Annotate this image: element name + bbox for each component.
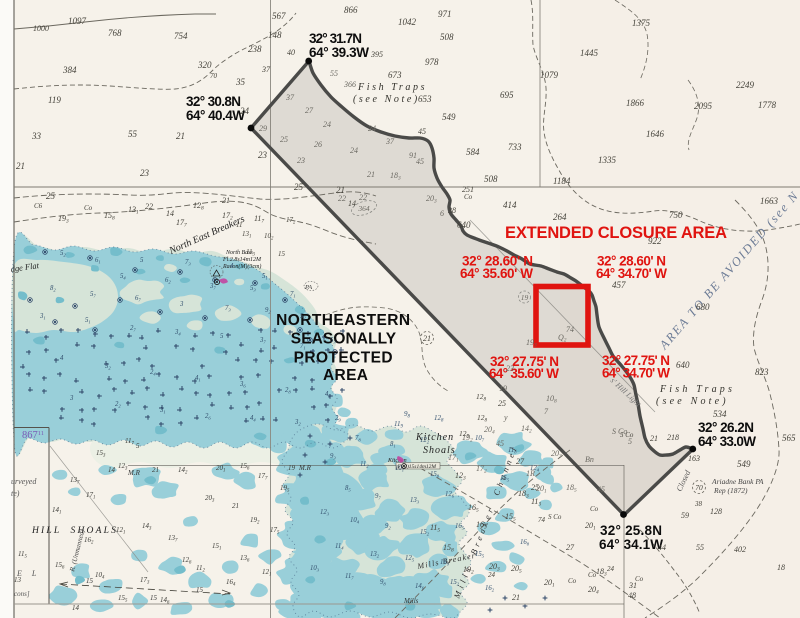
svg-text:y: y xyxy=(503,413,508,422)
svg-text:70: 70 xyxy=(210,72,218,80)
svg-text:32° 26.2N64° 33.0W: 32° 26.2N64° 33.0W xyxy=(698,420,756,449)
svg-text:15: 15 xyxy=(150,594,158,602)
svg-text:70: 70 xyxy=(695,483,703,492)
svg-text:19: 19 xyxy=(521,293,529,302)
svg-text:148: 148 xyxy=(268,30,282,40)
svg-text:Fish Traps(see Note): Fish Traps(see Note) xyxy=(656,384,735,407)
svg-text:1042: 1042 xyxy=(398,17,417,27)
svg-text:1866: 1866 xyxy=(626,98,645,108)
svg-text:32° 27.75' N64° 34.70' W: 32° 27.75' N64° 34.70' W xyxy=(602,353,670,381)
svg-text:22: 22 xyxy=(338,194,346,203)
svg-text:640: 640 xyxy=(457,220,471,230)
svg-text:21: 21 xyxy=(152,466,159,474)
svg-text:45: 45 xyxy=(418,127,426,136)
svg-text:238: 238 xyxy=(248,44,262,54)
svg-text:37: 37 xyxy=(261,65,271,74)
svg-text:15: 15 xyxy=(196,586,204,594)
svg-text:S Co: S Co xyxy=(548,513,562,521)
svg-text:40: 40 xyxy=(287,48,295,57)
svg-text:1663: 1663 xyxy=(760,196,779,206)
svg-text:55: 55 xyxy=(696,543,704,552)
svg-text:754: 754 xyxy=(174,31,188,41)
svg-text:11: 11 xyxy=(236,221,242,229)
svg-text:Co: Co xyxy=(84,204,93,212)
svg-text:1079: 1079 xyxy=(540,70,559,80)
svg-text:3: 3 xyxy=(69,395,74,402)
svg-text:402: 402 xyxy=(734,545,746,554)
svg-text:27: 27 xyxy=(305,106,314,115)
svg-text:M.R: M.R xyxy=(298,464,312,472)
svg-text:37: 37 xyxy=(385,137,395,146)
svg-text:21: 21 xyxy=(232,502,239,510)
svg-text:48: 48 xyxy=(628,591,636,600)
svg-text:4: 4 xyxy=(60,355,64,362)
svg-text:5: 5 xyxy=(140,257,144,264)
svg-text:2249: 2249 xyxy=(736,80,755,90)
svg-text:24: 24 xyxy=(240,106,250,116)
svg-text:44: 44 xyxy=(658,543,666,552)
svg-text:23: 23 xyxy=(140,168,150,178)
svg-text:38: 38 xyxy=(447,206,456,215)
svg-text:2095: 2095 xyxy=(694,101,713,111)
svg-text:27: 27 xyxy=(516,457,525,466)
svg-text:5: 5 xyxy=(136,442,140,450)
svg-text:Co: Co xyxy=(464,193,473,201)
svg-text:59: 59 xyxy=(681,511,689,520)
svg-text:3: 3 xyxy=(179,301,184,308)
svg-text:24: 24 xyxy=(323,120,331,129)
svg-text:14: 14 xyxy=(108,466,116,474)
svg-text:35: 35 xyxy=(235,77,246,87)
svg-text:24: 24 xyxy=(488,571,496,579)
svg-text:74: 74 xyxy=(566,325,574,334)
svg-text:1000: 1000 xyxy=(33,24,49,33)
svg-text:364: 364 xyxy=(357,204,370,213)
svg-text:978: 978 xyxy=(425,57,439,67)
svg-text:25: 25 xyxy=(46,191,56,201)
svg-text:23: 23 xyxy=(506,364,514,373)
svg-text:21: 21 xyxy=(176,131,185,141)
svg-text:Bn: Bn xyxy=(585,455,594,464)
svg-text:218: 218 xyxy=(667,433,679,442)
svg-text:1646: 1646 xyxy=(646,129,665,139)
svg-text:37: 37 xyxy=(285,93,295,102)
svg-text:1184: 1184 xyxy=(553,176,571,186)
svg-text:695: 695 xyxy=(500,90,514,100)
svg-text:549: 549 xyxy=(442,112,456,122)
svg-text:Fish Traps(see Note): Fish Traps(see Note) xyxy=(353,82,427,105)
svg-text:971: 971 xyxy=(438,9,452,19)
svg-text:45: 45 xyxy=(416,157,424,166)
svg-text:cons]: cons] xyxy=(14,590,30,598)
svg-text:5: 5 xyxy=(220,333,224,340)
svg-text:PA: PA xyxy=(304,284,312,291)
svg-text:128: 128 xyxy=(710,507,722,516)
svg-text:Co: Co xyxy=(588,571,597,579)
svg-text:25: 25 xyxy=(498,399,506,408)
svg-text:M.R: M.R xyxy=(127,469,141,477)
svg-text:21: 21 xyxy=(222,196,230,205)
svg-text:508: 508 xyxy=(440,32,454,42)
svg-text:653: 653 xyxy=(418,94,432,104)
svg-text:32° 31.7N64° 39.3W: 32° 31.7N64° 39.3W xyxy=(309,31,369,60)
svg-text:457: 457 xyxy=(612,280,626,290)
svg-text:922: 922 xyxy=(648,236,662,246)
svg-text:22: 22 xyxy=(359,193,367,202)
svg-text:5: 5 xyxy=(628,437,632,446)
svg-text:38: 38 xyxy=(694,500,703,508)
svg-text:74: 74 xyxy=(538,516,546,524)
svg-text:24: 24 xyxy=(350,146,358,155)
svg-text:768: 768 xyxy=(108,28,122,38)
svg-text:C6: C6 xyxy=(34,202,43,210)
svg-text:S Co: S Co xyxy=(612,427,627,436)
svg-text:24: 24 xyxy=(368,124,376,133)
svg-text:32° 25.8N64° 34.1W: 32° 25.8N64° 34.1W xyxy=(599,523,663,552)
svg-text:534: 534 xyxy=(713,409,727,419)
svg-text:14: 14 xyxy=(166,209,174,218)
svg-text:567: 567 xyxy=(272,11,286,21)
svg-text:733: 733 xyxy=(508,142,522,152)
svg-text:866: 866 xyxy=(344,5,358,15)
svg-text:680: 680 xyxy=(696,302,710,312)
svg-text:45: 45 xyxy=(597,485,605,494)
svg-text:Co: Co xyxy=(568,577,577,585)
svg-text:18: 18 xyxy=(777,563,785,572)
svg-text:Co: Co xyxy=(590,505,599,513)
svg-text:23: 23 xyxy=(258,150,268,160)
svg-text:55: 55 xyxy=(128,129,138,139)
svg-text:25: 25 xyxy=(294,182,304,192)
svg-text:45: 45 xyxy=(496,439,504,448)
svg-text:366: 366 xyxy=(343,80,356,89)
svg-text:21: 21 xyxy=(367,170,375,179)
svg-text:565: 565 xyxy=(782,433,796,443)
svg-text:21: 21 xyxy=(16,161,25,171)
svg-text:32° 30.8N64° 40.4W: 32° 30.8N64° 40.4W xyxy=(186,94,245,123)
svg-text:823: 823 xyxy=(755,367,769,377)
svg-text:19: 19 xyxy=(499,384,507,393)
svg-text:23: 23 xyxy=(297,156,305,165)
svg-text:1375: 1375 xyxy=(632,18,651,28)
svg-text:32° 27.75' N64° 35.60' W: 32° 27.75' N64° 35.60' W xyxy=(489,354,559,381)
svg-text:1097: 1097 xyxy=(68,16,87,26)
svg-text:4: 4 xyxy=(230,263,234,270)
svg-text:26: 26 xyxy=(314,140,322,149)
svg-text:673: 673 xyxy=(388,70,402,80)
svg-text:HILL SHOALS: HILL SHOALS xyxy=(31,526,118,536)
svg-text:1335: 1335 xyxy=(598,155,617,165)
svg-text:508: 508 xyxy=(484,174,498,184)
svg-text:584: 584 xyxy=(466,147,480,157)
svg-text:32° 28.60' N64° 34.70' W: 32° 28.60' N64° 34.70' W xyxy=(596,254,667,282)
svg-text:640: 640 xyxy=(676,360,690,370)
svg-text:15: 15 xyxy=(86,577,94,585)
svg-text:32° 28.60' N64° 35.60' W: 32° 28.60' N64° 35.60' W xyxy=(460,254,533,282)
svg-text:395: 395 xyxy=(370,50,383,59)
svg-text:15: 15 xyxy=(278,250,286,258)
svg-text:24: 24 xyxy=(607,565,615,573)
svg-text:163: 163 xyxy=(688,454,700,463)
svg-text:Co: Co xyxy=(635,575,644,583)
svg-text:414: 414 xyxy=(503,200,517,210)
svg-text:Mills: Mills xyxy=(403,597,419,605)
svg-text:13: 13 xyxy=(14,576,22,584)
svg-text:264: 264 xyxy=(553,212,567,222)
svg-text:33: 33 xyxy=(31,131,42,141)
svg-text:21: 21 xyxy=(650,434,658,443)
svg-text:22: 22 xyxy=(145,202,153,211)
svg-text:320: 320 xyxy=(197,60,212,70)
svg-text:19: 19 xyxy=(288,464,296,472)
svg-text:EXTENDED CLOSURE AREA: EXTENDED CLOSURE AREA xyxy=(505,224,727,242)
svg-text:21: 21 xyxy=(423,334,431,343)
svg-text:27: 27 xyxy=(566,543,575,552)
svg-text:29: 29 xyxy=(259,124,267,133)
svg-text:750: 750 xyxy=(669,210,683,220)
svg-text:119: 119 xyxy=(48,95,61,105)
svg-text:14: 14 xyxy=(72,604,80,612)
svg-text:6: 6 xyxy=(440,209,444,218)
svg-text:549: 549 xyxy=(737,459,751,469)
svg-text:1445: 1445 xyxy=(580,48,599,58)
svg-text:384: 384 xyxy=(62,65,77,75)
svg-text:1778: 1778 xyxy=(758,100,777,110)
svg-text:14: 14 xyxy=(348,199,356,208)
svg-text:21: 21 xyxy=(512,593,520,602)
svg-text:25: 25 xyxy=(280,135,288,144)
svg-text:55: 55 xyxy=(330,69,338,78)
